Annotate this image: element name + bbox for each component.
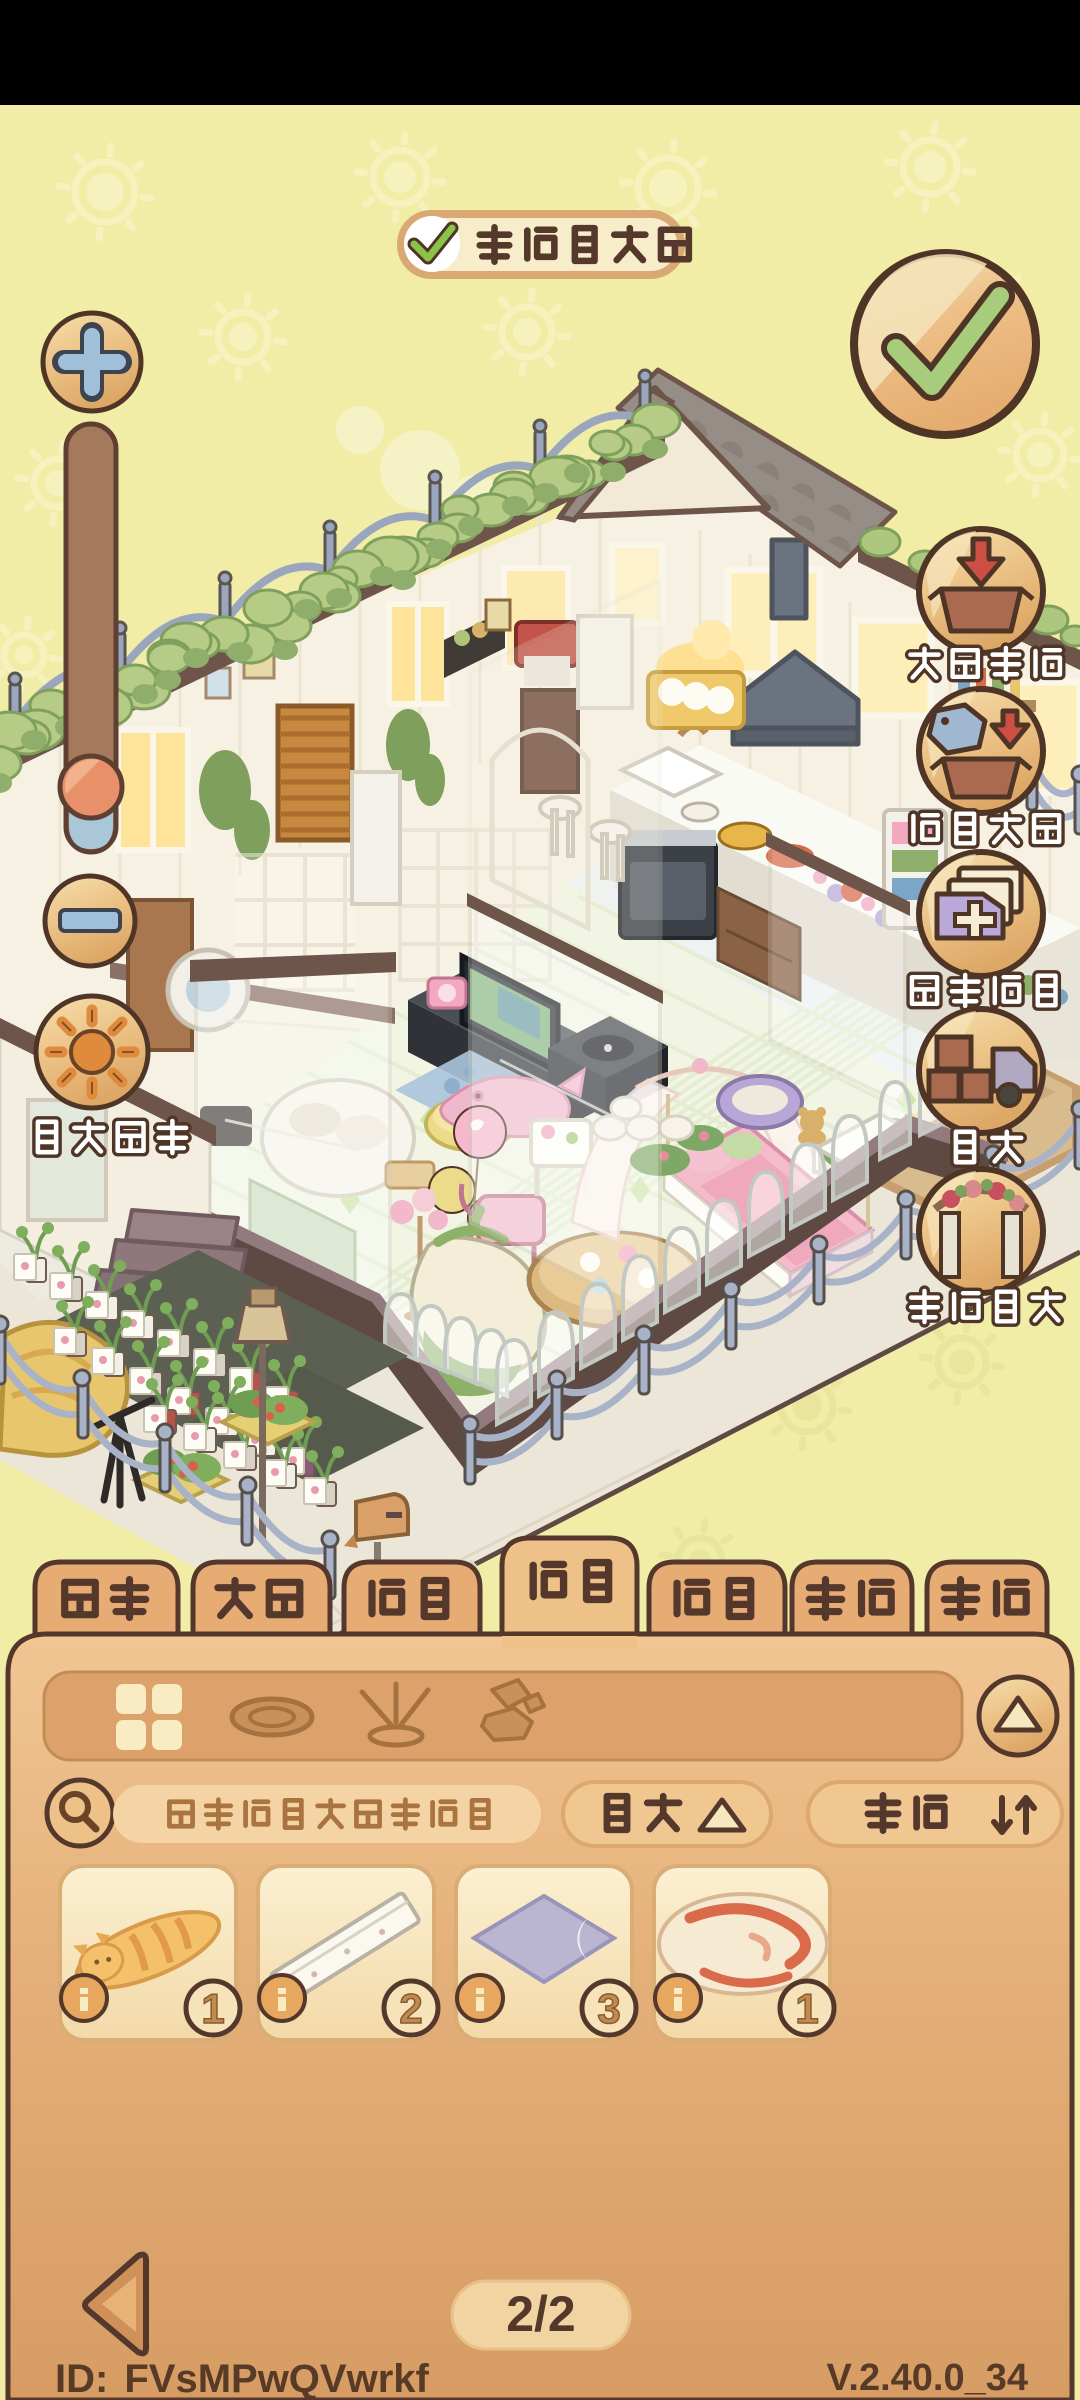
svg-text:1: 1	[201, 1985, 224, 2032]
svg-text:2: 2	[399, 1985, 422, 2032]
svg-text:ID: FVsMPwQVwrkf: ID: FVsMPwQVwrkf	[55, 2357, 430, 2400]
svg-text:V.2.40.0_34: V.2.40.0_34	[827, 2357, 1028, 2399]
svg-text:1: 1	[795, 1985, 818, 2032]
svg-text:3: 3	[597, 1985, 620, 2032]
svg-text:2/2: 2/2	[506, 2286, 576, 2342]
